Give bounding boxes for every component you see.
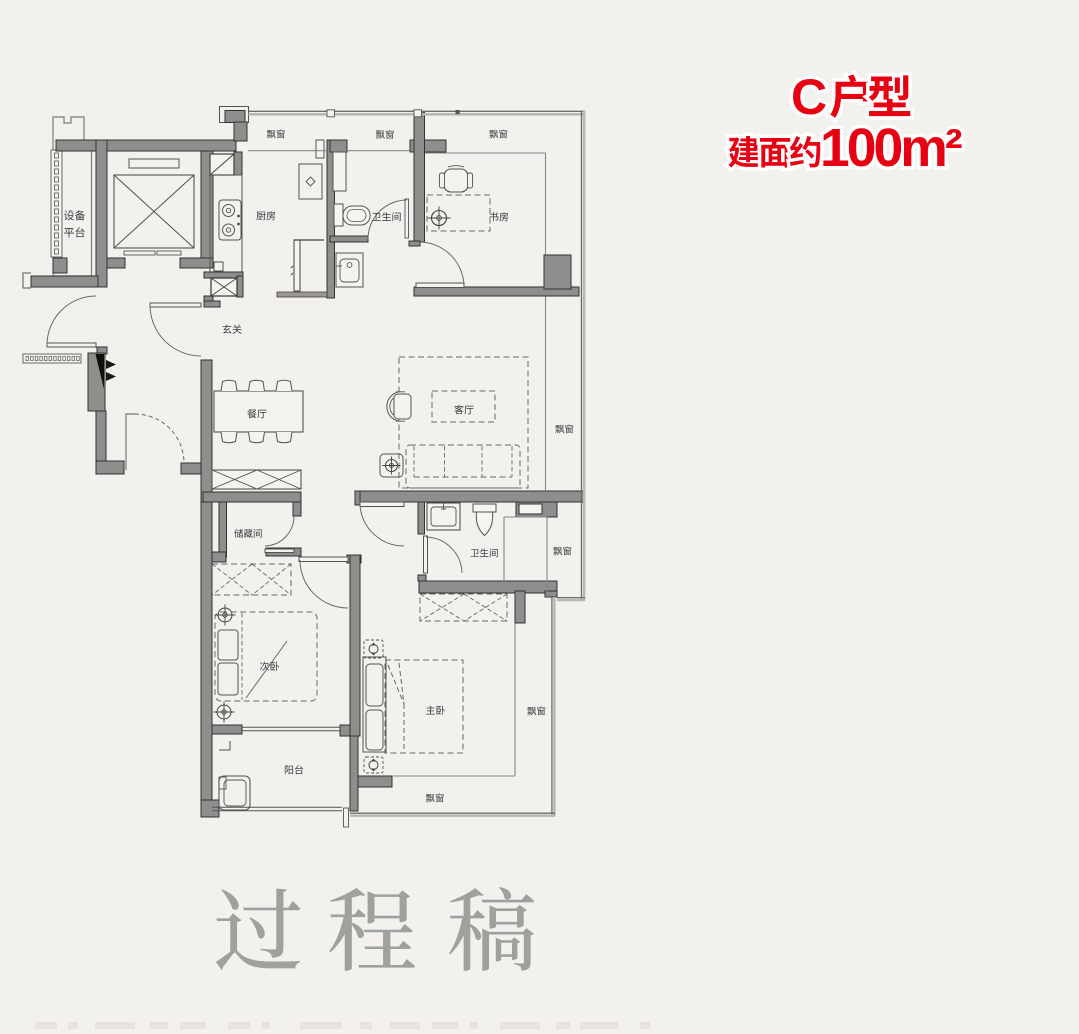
svg-text:C: C xyxy=(791,69,827,125)
svg-text:100m²: 100m² xyxy=(820,119,962,178)
